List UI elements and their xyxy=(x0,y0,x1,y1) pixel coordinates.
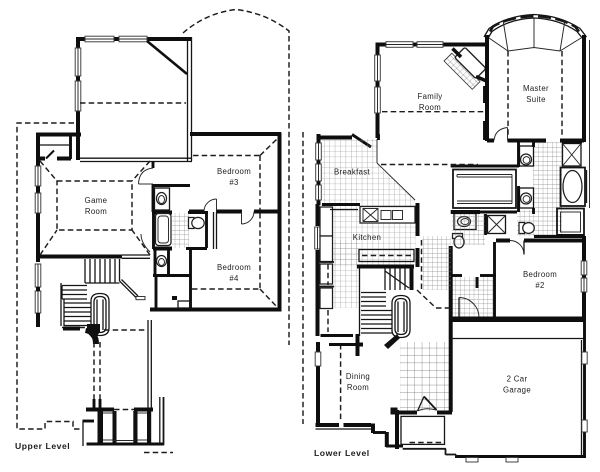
svg-text:Room: Room xyxy=(419,103,441,112)
svg-text:Family: Family xyxy=(417,92,442,101)
svg-text:#2: #2 xyxy=(535,281,544,290)
svg-text:Bedroom: Bedroom xyxy=(217,167,251,176)
svg-text:Bedroom: Bedroom xyxy=(523,270,557,279)
svg-text:2 Car: 2 Car xyxy=(507,375,528,384)
svg-text:Bedroom: Bedroom xyxy=(217,263,251,272)
svg-text:Master: Master xyxy=(523,84,549,93)
svg-text:Room: Room xyxy=(85,207,107,216)
svg-text:Lower Level: Lower Level xyxy=(314,448,370,458)
svg-text:#3: #3 xyxy=(229,178,238,187)
svg-text:#4: #4 xyxy=(229,274,239,283)
svg-text:Upper Level: Upper Level xyxy=(15,441,70,451)
svg-text:Suite: Suite xyxy=(526,95,546,104)
svg-text:Kitchen: Kitchen xyxy=(353,233,381,242)
svg-text:Dining: Dining xyxy=(346,372,370,381)
svg-text:Room: Room xyxy=(347,383,369,392)
svg-text:Garage: Garage xyxy=(503,386,531,395)
svg-text:Game: Game xyxy=(85,196,108,205)
svg-text:Breakfast: Breakfast xyxy=(334,168,371,177)
